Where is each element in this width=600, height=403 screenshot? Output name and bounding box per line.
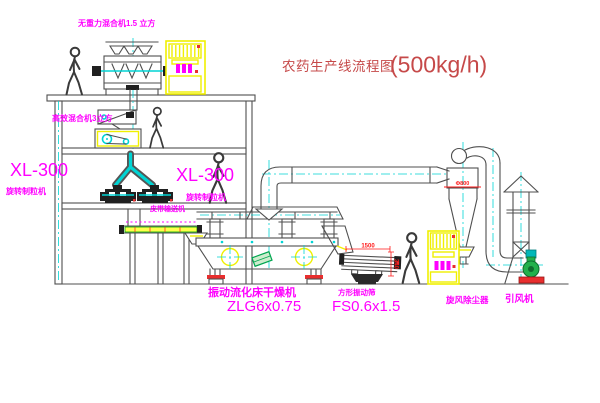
belt-conveyor-drawing (119, 222, 202, 283)
label-dryer-name: 振动流化床干燥机 (208, 285, 296, 299)
label-granulator-right-model: XL-300 (176, 165, 234, 185)
label-granulator-left-name: 旋转制粒机 (5, 186, 46, 196)
vibrating-sieve-drawing (339, 246, 402, 285)
fluid-bed-dryer-drawing (196, 207, 353, 284)
y-chute (116, 154, 153, 185)
label-gravity-free-mixer: 无重力混合机1.5 立方 (77, 18, 155, 28)
flow-diagram-svg: 农药生产线流程图 (500kg/h) 无重力混合机1.5 立方 高效混合机3立方… (0, 0, 600, 403)
person-figure-second-floor (150, 108, 163, 148)
label-high-efficiency-mixer: 高效混合机3立方 (52, 113, 112, 123)
cad-canvas: 农药生产线流程图 (500kg/h) 无重力混合机1.5 立方 高效混合机3立方… (0, 0, 600, 403)
label-fan-name: 引风机 (505, 293, 534, 305)
collection-chute (126, 209, 142, 225)
granulator-right-drawing (137, 185, 173, 203)
label-belt-conveyor: 皮带输送机 (149, 204, 185, 213)
control-cabinet-2 (428, 231, 459, 284)
dim-sieve-length: 1500 (361, 244, 375, 250)
control-cabinet-1 (166, 41, 205, 94)
label-cyclone-name: 旋风除尘器 (445, 295, 489, 305)
granulator-left-drawing (100, 185, 136, 203)
label-sieve-model: FS0.6x1.5 (332, 298, 400, 315)
person-figure-top-floor (67, 48, 83, 95)
dim-sieve-height: 340 (393, 259, 399, 270)
label-granulator-right-name: 旋转制粒机 (185, 192, 226, 202)
label-sieve-name: 方形振动筛 (338, 287, 376, 297)
label-dryer-model: ZLG6x0.75 (227, 298, 301, 315)
title-capacity: (500kg/h) (390, 52, 487, 78)
induced-draft-fan-drawing (519, 250, 544, 283)
dim-cyclone-diameter: Φ800 (456, 181, 470, 187)
label-granulator-left-model: XL-300 (10, 160, 68, 180)
person-figure-ground (403, 233, 419, 283)
title-chinese: 农药生产线流程图 (282, 59, 394, 74)
